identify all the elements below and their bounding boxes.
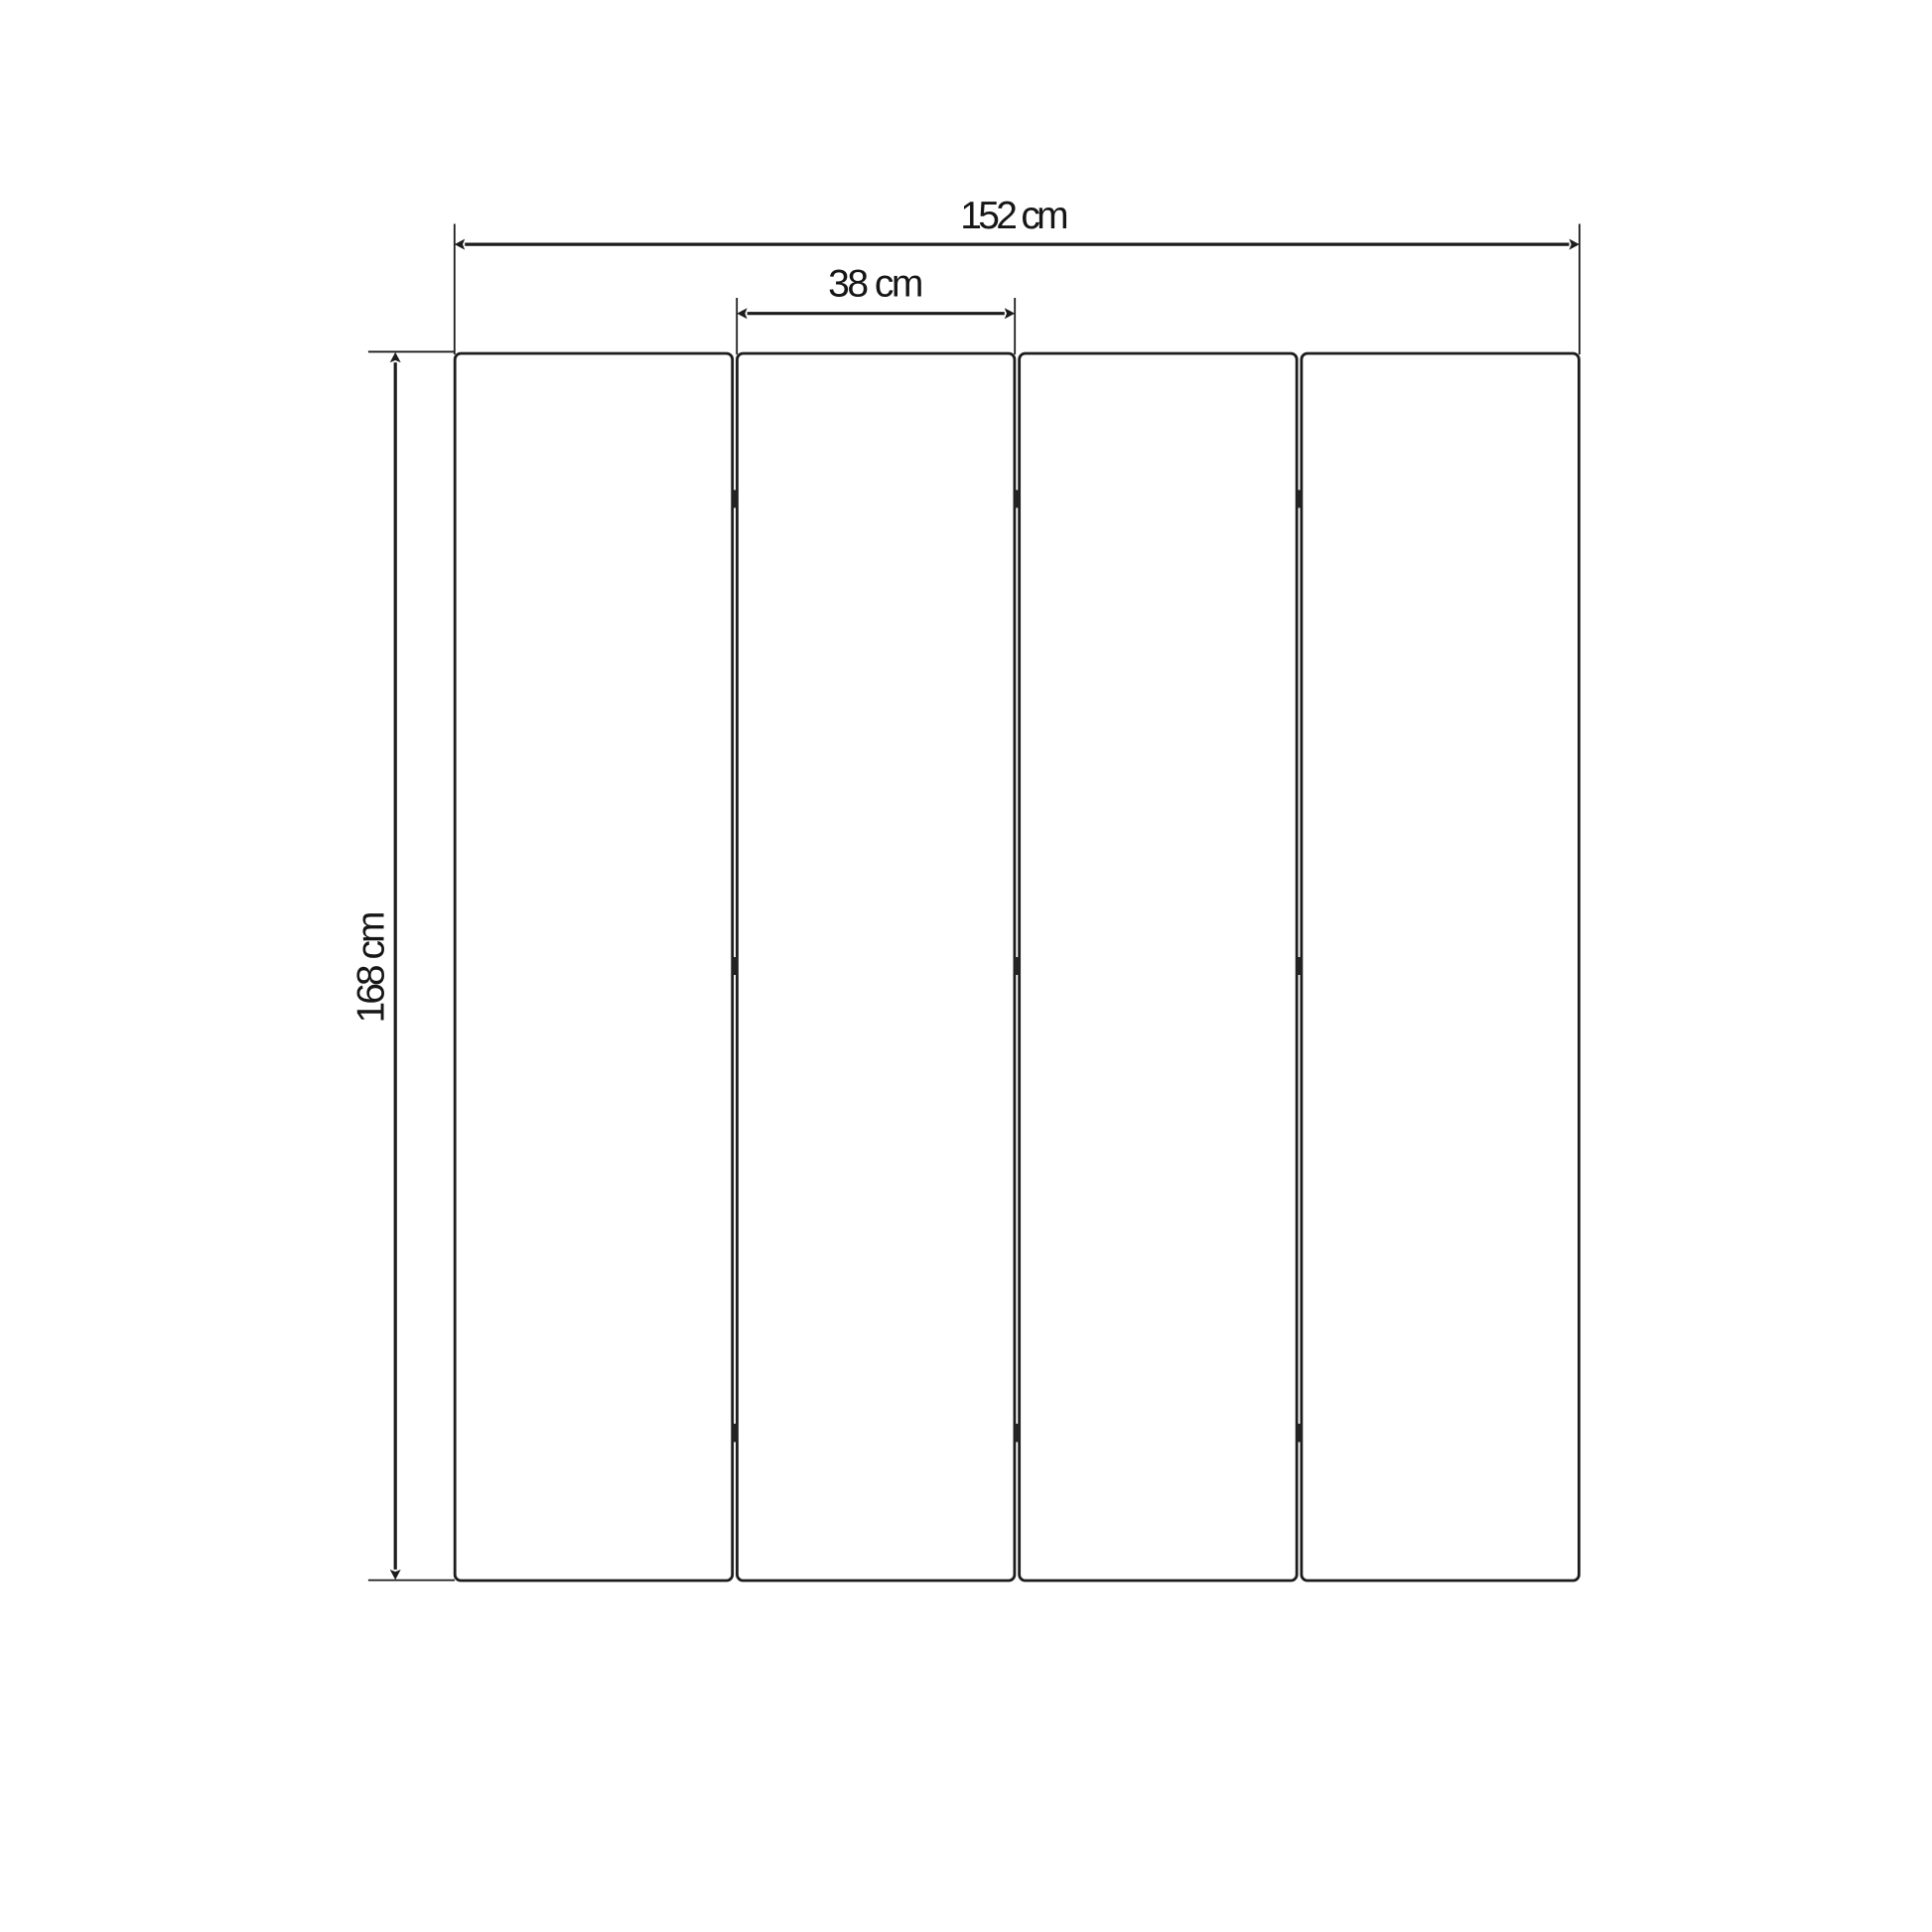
svg-text:152 cm: 152 cm: [960, 195, 1066, 237]
svg-text:38 cm: 38 cm: [828, 262, 921, 305]
svg-text:168 cm: 168 cm: [349, 913, 392, 1023]
